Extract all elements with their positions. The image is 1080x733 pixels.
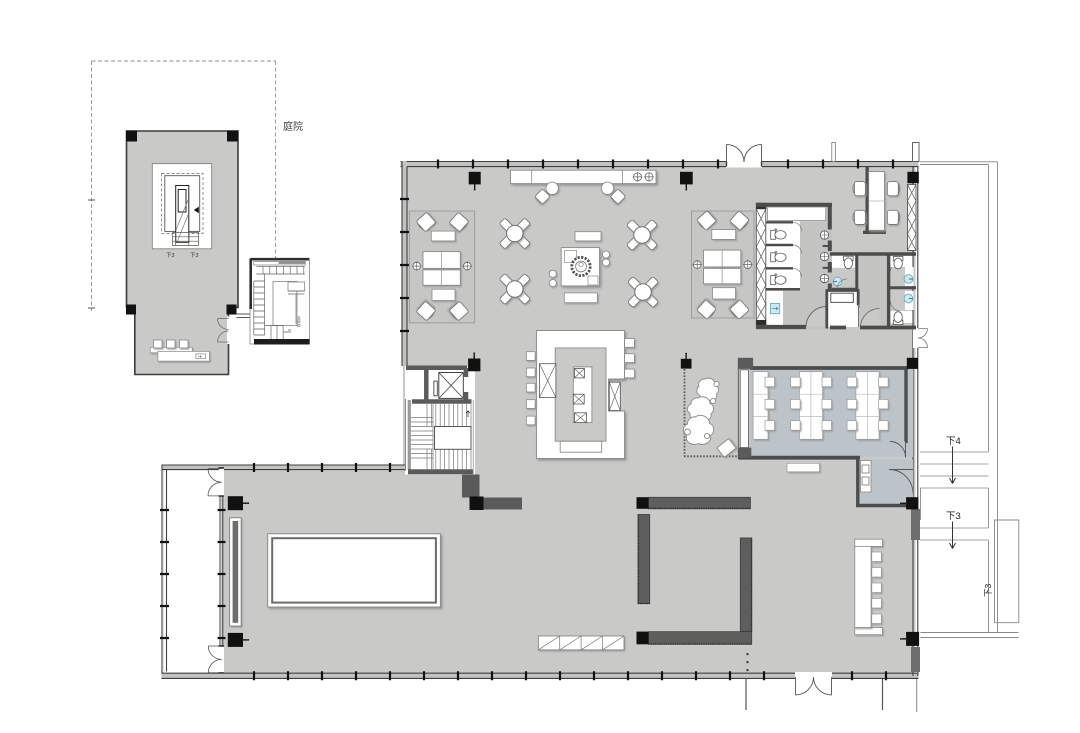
- svg-text:下3: 下3: [166, 252, 175, 259]
- svg-text:下3: 下3: [946, 511, 961, 522]
- svg-text:下4: 下4: [946, 436, 961, 447]
- svg-text:下3: 下3: [190, 252, 199, 259]
- svg-text:庭院: 庭院: [283, 120, 303, 133]
- svg-text:楼梯间: 楼梯间: [296, 316, 301, 327]
- svg-text:下3: 下3: [983, 583, 993, 597]
